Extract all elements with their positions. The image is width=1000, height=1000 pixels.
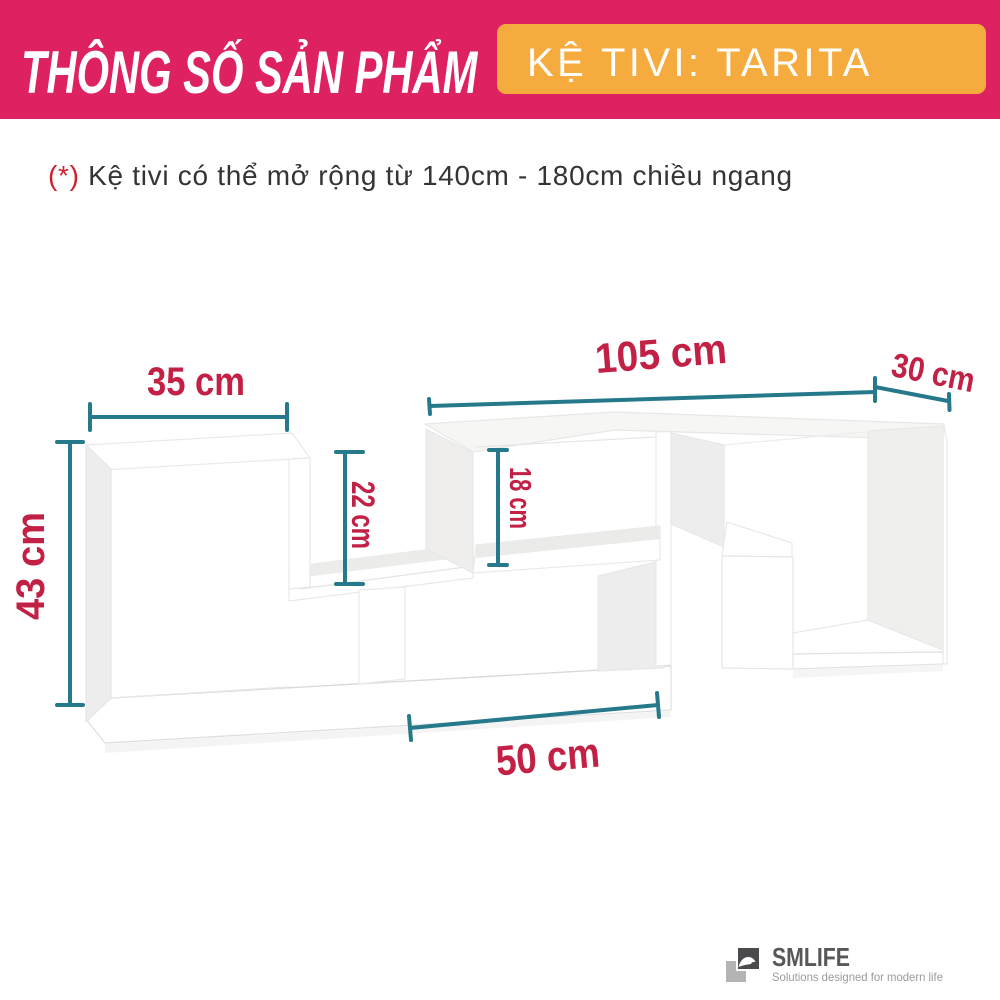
svg-text:18 cm: 18 cm bbox=[503, 467, 538, 529]
svg-text:Solutions designed for modern: Solutions designed for modern life bbox=[772, 970, 943, 984]
svg-text:22 cm: 22 cm bbox=[345, 481, 381, 549]
svg-text:50 cm: 50 cm bbox=[494, 729, 602, 785]
svg-text:105 cm: 105 cm bbox=[593, 325, 728, 382]
svg-text:35 cm: 35 cm bbox=[147, 360, 245, 404]
svg-text:SMLIFE: SMLIFE bbox=[772, 942, 850, 972]
svg-text:43 cm: 43 cm bbox=[9, 512, 53, 620]
